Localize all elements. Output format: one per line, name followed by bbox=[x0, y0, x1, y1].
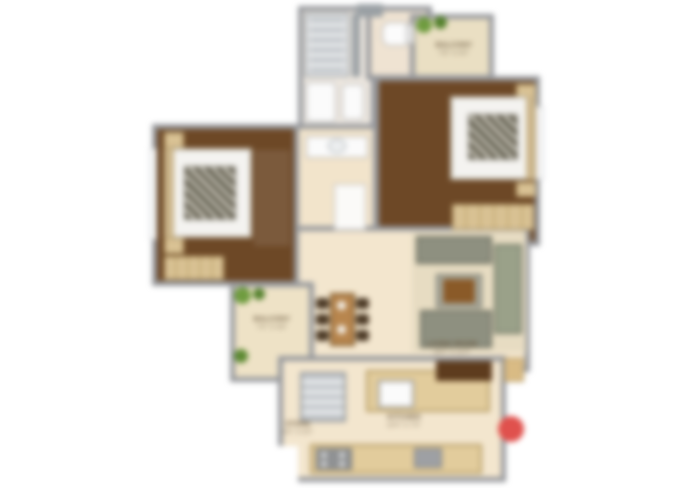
living-dims: 16'0" X 11'0" bbox=[420, 349, 484, 357]
living-name: LIVING ROOM bbox=[427, 341, 477, 348]
balcony-left-dims: 7'0" X 4'6" bbox=[244, 324, 300, 332]
washbasin-icon bbox=[342, 84, 364, 120]
balcony-left-name: BALCONY bbox=[254, 316, 291, 323]
coffee-table-top bbox=[443, 279, 475, 303]
kitchen-name: KITCHEN bbox=[387, 414, 420, 421]
overhead-cabinet bbox=[436, 361, 492, 381]
sink-icon bbox=[378, 380, 414, 408]
dining-chair bbox=[356, 330, 369, 341]
dining-chair bbox=[316, 314, 329, 325]
wardrobe bbox=[452, 204, 534, 230]
side-table bbox=[516, 182, 536, 197]
balcony-left-label: BALCONY 7'0" X 4'6" bbox=[244, 316, 300, 332]
balcony-top-label: BALCONY 7'6" X 4'0" bbox=[428, 42, 480, 58]
wc-icon bbox=[306, 82, 336, 122]
bed-1-blanket bbox=[184, 166, 236, 220]
living-label: LIVING ROOM 16'0" X 11'0" bbox=[420, 341, 484, 357]
store-label: STORE 4'0" X 5'0" bbox=[276, 421, 320, 437]
burner-icon bbox=[321, 461, 327, 467]
window-icon bbox=[536, 106, 543, 180]
floorplan-image: BALCONY 7'6" X 4'0" BALCONY 7'0" X 4'6" bbox=[0, 0, 700, 488]
wc2-tank bbox=[406, 24, 414, 44]
plant-icon bbox=[253, 288, 265, 300]
plate-icon bbox=[337, 301, 346, 310]
dining-chair bbox=[356, 298, 369, 309]
wardrobe bbox=[164, 256, 224, 280]
dining-chair bbox=[316, 298, 329, 309]
dining-chair bbox=[316, 330, 329, 341]
shaft-cap bbox=[357, 4, 383, 17]
balcony-top-name: BALCONY bbox=[436, 42, 473, 49]
plant-icon bbox=[234, 349, 248, 363]
stove-icon bbox=[316, 448, 352, 470]
store-name: STORE bbox=[285, 421, 311, 428]
kitchen-shelf-rack bbox=[300, 372, 346, 422]
burner-icon bbox=[339, 461, 345, 467]
sofa-top bbox=[416, 236, 492, 264]
store-dims: 4'0" X 5'0" bbox=[276, 429, 320, 437]
kitchen-label: KITCHEN 10'0" X 7'0" bbox=[380, 414, 428, 430]
bath-partition-wall bbox=[352, 13, 360, 77]
plant-icon bbox=[234, 287, 251, 304]
window-icon bbox=[150, 148, 157, 240]
kitchen-dims: 10'0" X 7'0" bbox=[380, 422, 428, 430]
shower-screen bbox=[309, 17, 345, 73]
side-table bbox=[164, 132, 184, 148]
burner-icon bbox=[339, 452, 345, 458]
bed-1-headboard bbox=[164, 148, 174, 238]
plant-icon bbox=[434, 16, 447, 29]
door-leaf bbox=[334, 184, 366, 230]
compass-logo-icon bbox=[498, 416, 524, 442]
bed-2-headboard bbox=[526, 96, 536, 180]
appliance-icon bbox=[414, 448, 442, 468]
rug bbox=[254, 150, 290, 246]
burner-icon bbox=[321, 452, 327, 458]
side-table bbox=[164, 238, 184, 254]
floorplan-canvas: BALCONY 7'6" X 4'0" BALCONY 7'0" X 4'6" bbox=[0, 0, 700, 488]
dining-chair bbox=[356, 314, 369, 325]
plate-icon bbox=[337, 325, 346, 334]
kitchen-notch bbox=[274, 446, 298, 486]
balcony-top-dims: 7'6" X 4'0" bbox=[428, 50, 480, 58]
plant-icon bbox=[416, 17, 432, 33]
entry-door-leaf bbox=[504, 358, 524, 382]
wc2-icon bbox=[382, 22, 408, 46]
sofa-right bbox=[494, 244, 522, 334]
wash-basin-icon bbox=[328, 139, 346, 153]
bed-2-blanket bbox=[468, 114, 518, 160]
